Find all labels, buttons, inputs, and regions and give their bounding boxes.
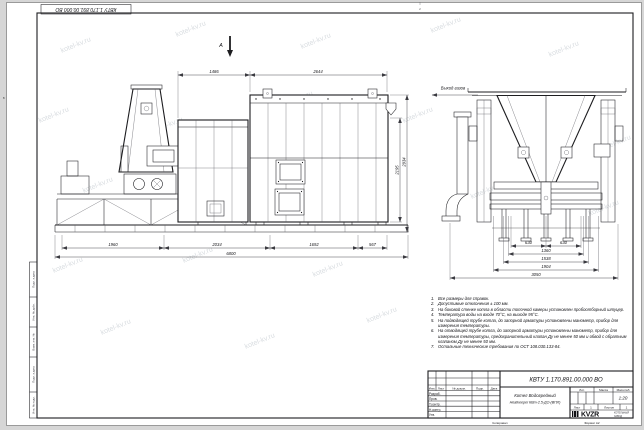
row-approved: Утв. (429, 413, 435, 417)
note-text: На подводящей трубе котла, до запорной а… (438, 318, 632, 329)
item-name-line1: Котел Водогрейный (514, 393, 556, 398)
note-number: 7. (431, 344, 438, 349)
side-pipe (442, 112, 471, 221)
boiler-door-upper (276, 160, 305, 184)
fuel-hopper (119, 85, 180, 172)
item-name-line2: Heatkeeper КВт-2.5-ДО-(ВПЛ) (510, 401, 561, 405)
dim-label: 1692 (309, 242, 319, 247)
drawing-sheet: kotel-kv.ru kotel-kv.ru kotel-kv.ru kote… (0, 0, 644, 430)
end-view-dimensions: 630 630 1360 1538 1904 3050 (450, 216, 618, 280)
logo-sub2: ЗАВОД (614, 415, 622, 418)
boiler-door-lower (275, 189, 304, 215)
scale-value: 1:20 (619, 396, 628, 401)
logo-text: KVZR (581, 412, 599, 419)
mass-label: Масса (599, 388, 608, 392)
left-margin-cells: Подп. и дата Инв. № дубл. Взам. инв. № П… (30, 262, 38, 418)
copied-label: Копировал (492, 421, 507, 425)
note-item: 7.Остальные технические требования по ОС… (431, 344, 632, 349)
row-checked: Пров. (429, 397, 438, 401)
dim-label: 1960 (108, 242, 118, 247)
row-ncontrol: Н.контр. (429, 408, 441, 412)
gas-outlet-label: Выход газов (441, 86, 466, 91)
format-label: Формат А2 (584, 421, 599, 425)
lit-label: Лит. (579, 388, 585, 392)
dim-label: 1360 (541, 248, 551, 253)
svg-text:А: А (218, 43, 223, 49)
scale-label: Масштаб (617, 388, 630, 392)
designation: КВТУ 1.170.891.00.000 ВО (529, 378, 603, 384)
dim-label: 1486 (209, 69, 219, 74)
view-direction-arrow: А (218, 36, 233, 57)
dim-label: 630 (560, 240, 568, 245)
boiler-body (250, 89, 396, 225)
margin-cell-label: Взам. инв. № (31, 333, 35, 350)
col-list: Лист (438, 387, 445, 391)
pedestal (61, 161, 89, 194)
technical-notes: 1.Все размеры для справок. 2.Допустимые … (431, 296, 632, 370)
dim-label: 2195 (395, 165, 400, 176)
col-doc: № докум. (452, 387, 465, 391)
end-hopper (497, 96, 595, 183)
dim-label: 2644 (312, 69, 323, 74)
note-number: 6. (431, 328, 438, 344)
col-date: Дата (491, 387, 498, 391)
zone-top: 2 (419, 7, 421, 11)
margin-cell-label: Подп. и дата (31, 366, 35, 383)
margin-cell-label: Инв. № подл. (31, 396, 35, 414)
fuel-feeder (124, 174, 176, 194)
end-platforms (490, 182, 602, 214)
stamp-top-left: КВТУ 1.170.891.00.000 ВО (55, 6, 116, 12)
note-number: 5. (431, 318, 438, 329)
margin-cell-label: Инв. № дубл. (31, 303, 35, 321)
dim-label: 1904 (541, 264, 551, 269)
row-tcontrol: Т.контр. (429, 402, 441, 406)
row-developed: Разраб. (429, 392, 441, 396)
dim-label: 1538 (541, 256, 551, 261)
note-item: 5.На подводящей трубе котла, до запорной… (431, 318, 632, 329)
convective-block (178, 120, 248, 222)
note-text: На отводящей трубе котла, до запорной ар… (438, 328, 632, 344)
side-view-drawing: А (55, 36, 408, 232)
zone-left: В (3, 96, 5, 100)
dim-label: 6800 (226, 251, 236, 256)
sheet-label: Лист (574, 405, 581, 409)
end-view-drawing: Выход газов (432, 86, 626, 242)
margin-cell-label: Подп. и дата (31, 271, 35, 288)
title-block: Изм. Лист № докум. Подп. Дата Разраб. Пр… (428, 371, 633, 419)
note-item: 6.На отводящей трубе котла, до запорной … (431, 328, 632, 344)
col-izm: Изм. (429, 387, 436, 391)
col-sign: Подп. (476, 387, 484, 391)
sheets-label: Листов (604, 405, 614, 409)
dim-label: 3050 (531, 272, 541, 277)
dim-label: 567 (369, 242, 377, 247)
dim-label: 2934 (402, 157, 407, 168)
dim-label: 630 (525, 240, 533, 245)
dim-label: 2034 (211, 242, 222, 247)
note-text: Остальные технические требования по ОСТ … (438, 344, 632, 349)
